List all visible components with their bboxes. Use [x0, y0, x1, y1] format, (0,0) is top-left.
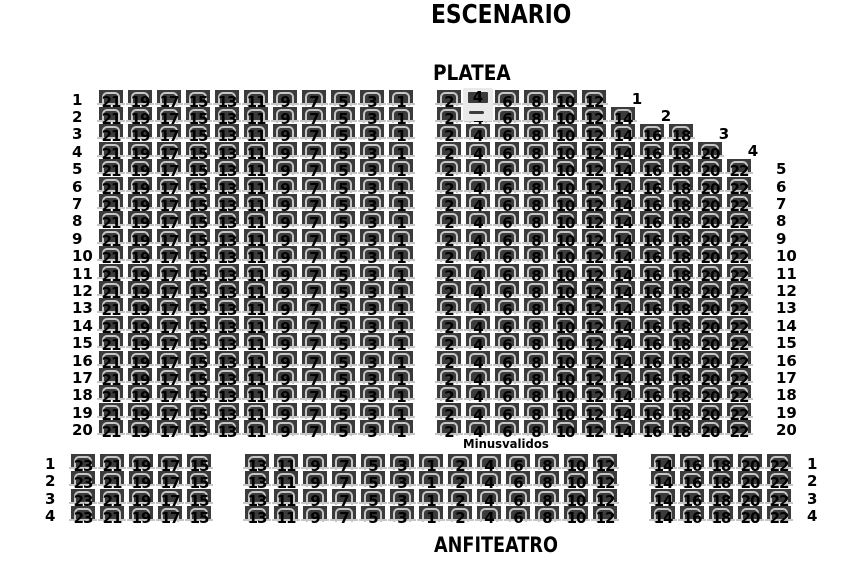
seat-platea-left-row20-num15[interactable]: 15 [186, 420, 210, 435]
seat-anfiteatro-right-row3-num16[interactable]: 16 [680, 489, 704, 504]
seat-platea-right-row20-num12[interactable]: 12 [582, 420, 606, 435]
seat-platea-left-row3-num13[interactable]: 13 [215, 124, 239, 139]
seat-platea-left-row10-num11[interactable]: 11 [244, 246, 268, 261]
seat-platea-right-row15-num14[interactable]: 14 [611, 333, 635, 348]
seat-number: 8 [521, 303, 551, 318]
seat-platea-left-row7-num21[interactable]: 21 [99, 194, 123, 209]
seat-number: 17 [154, 129, 184, 144]
seat-anfiteatro-right-row3-num22[interactable]: 22 [767, 489, 791, 504]
seat-number: 6 [503, 476, 533, 491]
seat-platea-left-row3-num15[interactable]: 15 [186, 124, 210, 139]
seat-platea-left-row8-num17[interactable]: 17 [157, 211, 181, 226]
seat-platea-right-row3-num16[interactable]: 16 [640, 124, 664, 139]
seat-platea-left-row13-num19[interactable]: 19 [128, 298, 152, 313]
seat-platea-left-row3-num21[interactable]: 21 [99, 124, 123, 139]
seat-platea-left-row1-num13[interactable]: 13 [215, 90, 239, 105]
seat-platea-right-row10-num14[interactable]: 14 [611, 246, 635, 261]
seat-platea-right-row13-num18[interactable]: 18 [669, 298, 693, 313]
seat-number: 18 [666, 390, 696, 405]
seat-anfiteatro-left-row1-num23[interactable]: 23 [71, 454, 95, 469]
seat-anfiteatro-left-row3-num15[interactable]: 15 [187, 489, 211, 504]
seat-platea-left-row2-num15[interactable]: 15 [186, 107, 210, 122]
seat-platea-left-row17-num15[interactable]: 15 [186, 368, 210, 383]
seat-number: 6 [492, 251, 522, 266]
seat-platea-right-row12-num16[interactable]: 16 [640, 281, 664, 296]
seat-platea-right-row1-num12[interactable]: 12 [582, 90, 606, 105]
seat-platea-left-row10-num21[interactable]: 21 [99, 246, 123, 261]
seat-anfiteatro-middle-row3-num10[interactable]: 10 [564, 489, 588, 504]
seat-anfiteatro-left-row1-num15[interactable]: 15 [187, 454, 211, 469]
seat-platea-right-row1-num6[interactable]: 6 [495, 90, 519, 105]
platea-row-label-right-15: 15 [776, 336, 797, 351]
seat-anfiteatro-right-row1-num14[interactable]: 14 [651, 454, 675, 469]
seat-number: 11 [241, 251, 271, 266]
seat-platea-left-row10-num17[interactable]: 17 [157, 246, 181, 261]
seat-platea-right-row17-num18[interactable]: 18 [669, 368, 693, 383]
seat-number: 5 [328, 373, 358, 388]
seat-platea-left-row7-num17[interactable]: 17 [157, 194, 181, 209]
seat-anfiteatro-middle-row2-num11[interactable]: 11 [274, 471, 298, 486]
seat-platea-left-row7-num13[interactable]: 13 [215, 194, 239, 209]
seat-platea-right-row5-num22[interactable]: 22 [727, 159, 751, 174]
seat-platea-left-row18-num15[interactable]: 15 [186, 385, 210, 400]
seat-platea-right-row20-num14[interactable]: 14 [611, 420, 635, 435]
seat-number: 17 [154, 164, 184, 179]
seat-platea-left-row13-num15[interactable]: 15 [186, 298, 210, 313]
seat-number: 11 [271, 459, 301, 474]
seat-platea-right-row18-num18[interactable]: 18 [669, 385, 693, 400]
anfiteatro-row-label-left-2: 2 [45, 474, 55, 489]
seat-platea-left-row15-num13[interactable]: 13 [215, 333, 239, 348]
seat-anfiteatro-left-row3-num17[interactable]: 17 [158, 489, 182, 504]
seat-number: 11 [241, 286, 271, 301]
seat-anfiteatro-middle-row4-num12[interactable]: 12 [593, 506, 617, 521]
seat-anfiteatro-middle-row1-num9[interactable]: 9 [303, 454, 327, 469]
seat-platea-left-row2-num13[interactable]: 13 [215, 107, 239, 122]
seat-platea-left-row13-num21[interactable]: 21 [99, 298, 123, 313]
seat-number: 16 [637, 147, 667, 162]
seat-platea-right-row7-num10[interactable]: 10 [553, 194, 577, 209]
seat-anfiteatro-right-row1-num18[interactable]: 18 [709, 454, 733, 469]
seat-anfiteatro-left-row2-num17[interactable]: 17 [158, 471, 182, 486]
seat-platea-right-row1-num8[interactable]: 8 [524, 90, 548, 105]
seat-platea-right-row18-num10[interactable]: 10 [553, 385, 577, 400]
seat-platea-left-row3-num11[interactable]: 11 [244, 124, 268, 139]
seat-platea-left-row5-num13[interactable]: 13 [215, 159, 239, 174]
seat-anfiteatro-right-row2-num18[interactable]: 18 [709, 471, 733, 486]
seat-number: 15 [184, 476, 214, 491]
seat-number: 12 [579, 129, 609, 144]
seat-platea-right-row8-num20[interactable]: 20 [698, 211, 722, 226]
seat-anfiteatro-right-row2-num22[interactable]: 22 [767, 471, 791, 486]
seat-platea-left-row1-num21[interactable]: 21 [99, 90, 123, 105]
seat-platea-left-row5-num19[interactable]: 19 [128, 159, 152, 174]
seat-platea-left-row8-num21[interactable]: 21 [99, 211, 123, 226]
seat-number: 13 [212, 425, 242, 440]
seat-platea-right-row12-num14[interactable]: 14 [611, 281, 635, 296]
seat-platea-right-row17-num16[interactable]: 16 [640, 368, 664, 383]
seat-platea-left-row2-num17[interactable]: 17 [157, 107, 181, 122]
seat-platea-right-row3-num14[interactable]: 14 [611, 124, 635, 139]
seat-anfiteatro-middle-row4-num11[interactable]: 11 [274, 506, 298, 521]
seat-platea-left-row15-num11[interactable]: 11 [244, 333, 268, 348]
seat-anfiteatro-middle-row2-num13[interactable]: 13 [245, 471, 269, 486]
seat-platea-right-row5-num18[interactable]: 18 [669, 159, 693, 174]
seat-platea-right-row12-num12[interactable]: 12 [582, 281, 606, 296]
seat-platea-left-row1-num1[interactable]: 1 [389, 90, 413, 105]
seat-platea-left-row18-num19[interactable]: 19 [128, 385, 152, 400]
seat-platea-right-row5-num20[interactable]: 20 [698, 159, 722, 174]
seat-number: 6 [492, 303, 522, 318]
seat-number: 22 [724, 321, 754, 336]
seat-platea-right-row1-num10[interactable]: 10 [553, 90, 577, 105]
seat-anfiteatro-right-row3-num18[interactable]: 18 [709, 489, 733, 504]
seat-number: 17 [154, 269, 184, 284]
seat-platea-right-row8-num14[interactable]: 14 [611, 211, 635, 226]
seat-platea-left-row1-num11[interactable]: 11 [244, 90, 268, 105]
seat-platea-left-row12-num15[interactable]: 15 [186, 281, 210, 296]
seat-platea-right-row8-num18[interactable]: 18 [669, 211, 693, 226]
seat-platea-left-row1-num17[interactable]: 17 [157, 90, 181, 105]
seat-platea-left-row17-num19[interactable]: 19 [128, 368, 152, 383]
seat-number: 8 [521, 112, 551, 127]
seat-platea-right-row7-num16[interactable]: 16 [640, 194, 664, 209]
seat-anfiteatro-middle-row1-num4[interactable]: 4 [477, 454, 501, 469]
seat-anfiteatro-middle-row1-num12[interactable]: 12 [593, 454, 617, 469]
seat-platea-right-row15-num22[interactable]: 22 [727, 333, 751, 348]
seat-number: 7 [299, 269, 329, 284]
seat-platea-left-row1-num7[interactable]: 7 [302, 90, 326, 105]
seat-platea-left-row8-num19[interactable]: 19 [128, 211, 152, 226]
seat-platea-right-row17-num14[interactable]: 14 [611, 368, 635, 383]
seat-number: 22 [724, 182, 754, 197]
seat-number: 2 [434, 303, 464, 318]
seat-number: 21 [96, 338, 126, 353]
seat-platea-right-row18-num22[interactable]: 22 [727, 385, 751, 400]
seat-platea-left-row13-num13[interactable]: 13 [215, 298, 239, 313]
seat-platea-right-row10-num12[interactable]: 12 [582, 246, 606, 261]
seat-platea-left-row8-num13[interactable]: 13 [215, 211, 239, 226]
seat-platea-left-row20-num13[interactable]: 13 [215, 420, 239, 435]
seat-number: 6 [492, 390, 522, 405]
seat-anfiteatro-middle-row2-num12[interactable]: 12 [593, 471, 617, 486]
seat-anfiteatro-middle-row1-num11[interactable]: 11 [274, 454, 298, 469]
seat-platea-right-row20-num10[interactable]: 10 [553, 420, 577, 435]
seat-platea-right-row10-num10[interactable]: 10 [553, 246, 577, 261]
seat-number: 18 [666, 425, 696, 440]
seat-anfiteatro-middle-row1-num6[interactable]: 6 [506, 454, 530, 469]
seat-platea-right-row15-num12[interactable]: 12 [582, 333, 606, 348]
seat-anfiteatro-left-row3-num23[interactable]: 23 [71, 489, 95, 504]
seat-platea-left-row2-num11[interactable]: 11 [244, 107, 268, 122]
seat-platea-right-row18-num12[interactable]: 12 [582, 385, 606, 400]
seat-platea-left-row5-num17[interactable]: 17 [157, 159, 181, 174]
seat-anfiteatro-middle-row3-num13[interactable]: 13 [245, 489, 269, 504]
seat-anfiteatro-right-row4-num16[interactable]: 16 [680, 506, 704, 521]
seat-anfiteatro-middle-row1-num2[interactable]: 2 [448, 454, 472, 469]
seat-number: 18 [666, 216, 696, 231]
seat-platea-left-row10-num13[interactable]: 13 [215, 246, 239, 261]
seat-platea-left-row7-num11[interactable]: 11 [244, 194, 268, 209]
seat-number: 7 [299, 408, 329, 423]
seat-platea-left-row12-num19[interactable]: 19 [128, 281, 152, 296]
seat-number: 10 [550, 269, 580, 284]
seat-platea-left-row13-num17[interactable]: 17 [157, 298, 181, 313]
seat-platea-left-row2-num21[interactable]: 21 [99, 107, 123, 122]
seat-number: 1 [416, 459, 446, 474]
anfiteatro-row-label-right-4: 4 [807, 509, 817, 524]
seat-platea-left-row5-num21[interactable]: 21 [99, 159, 123, 174]
seat-platea-left-row1-num9[interactable]: 9 [273, 90, 297, 105]
seat-number: 20 [735, 494, 765, 509]
seat-number: 7 [299, 286, 329, 301]
seat-anfiteatro-middle-row1-num3[interactable]: 3 [390, 454, 414, 469]
seat-platea-left-row2-num19[interactable]: 19 [128, 107, 152, 122]
seat-platea-left-row12-num21[interactable]: 21 [99, 281, 123, 296]
seat-number: 10 [561, 476, 591, 491]
seat-number: 21 [97, 494, 127, 509]
seat-platea-right-row17-num12[interactable]: 12 [582, 368, 606, 383]
seat-anfiteatro-left-row4-num19[interactable]: 19 [129, 506, 153, 521]
seat-platea-right-row5-num10[interactable]: 10 [553, 159, 577, 174]
seat-platea-right-row12-num20[interactable]: 20 [698, 281, 722, 296]
seat-platea-right-row13-num22[interactable]: 22 [727, 298, 751, 313]
seat-platea-left-row1-num19[interactable]: 19 [128, 90, 152, 105]
seat-number: 2 [434, 234, 464, 249]
seat-platea-right-row10-num20[interactable]: 20 [698, 246, 722, 261]
seat-number: 10 [550, 251, 580, 266]
seat-platea-right-row7-num22[interactable]: 22 [727, 194, 751, 209]
seat-platea-right-row10-num16[interactable]: 16 [640, 246, 664, 261]
platea-row-label-left-15: 15 [72, 336, 93, 351]
seat-platea-left-row15-num21[interactable]: 21 [99, 333, 123, 348]
seat-number: 12 [579, 356, 609, 371]
seat-platea-right-row5-num16[interactable]: 16 [640, 159, 664, 174]
seat-platea-left-row15-num17[interactable]: 17 [157, 333, 181, 348]
seat-anfiteatro-right-row2-num16[interactable]: 16 [680, 471, 704, 486]
seat-anfiteatro-left-row4-num17[interactable]: 17 [158, 506, 182, 521]
seat-platea-right-row1-num2[interactable]: 2 [437, 90, 461, 105]
seat-platea-right-row2-num10[interactable]: 10 [553, 107, 577, 122]
seat-number: 15 [184, 459, 214, 474]
seat-anfiteatro-left-row4-num23[interactable]: 23 [71, 506, 95, 521]
seat-platea-right-row13-num10[interactable]: 10 [553, 298, 577, 313]
seat-platea-left-row17-num17[interactable]: 17 [157, 368, 181, 383]
seat-platea-right-row2-num14[interactable]: 14 [611, 107, 635, 122]
seat-platea-right-row20-num22[interactable]: 22 [727, 420, 751, 435]
seat-anfiteatro-left-row1-num19[interactable]: 19 [129, 454, 153, 469]
seat-number: 7 [329, 511, 359, 526]
seat-number: 16 [637, 390, 667, 405]
seat-anfiteatro-right-row2-num14[interactable]: 14 [651, 471, 675, 486]
seat-platea-right-row20-num16[interactable]: 16 [640, 420, 664, 435]
seat-platea-left-row20-num19[interactable]: 19 [128, 420, 152, 435]
seat-anfiteatro-middle-row1-num8[interactable]: 8 [535, 454, 559, 469]
seat-anfiteatro-middle-row1-num13[interactable]: 13 [245, 454, 269, 469]
seat-platea-left-row12-num11[interactable]: 11 [244, 281, 268, 296]
seat-platea-right-row8-num22[interactable]: 22 [727, 211, 751, 226]
seat-platea-left-row7-num19[interactable]: 19 [128, 194, 152, 209]
platea-step-row-label-3: 3 [719, 127, 729, 142]
seat-platea-right-row18-num20[interactable]: 20 [698, 385, 722, 400]
seat-platea-right-row18-num14[interactable]: 14 [611, 385, 635, 400]
seat-anfiteatro-middle-row1-num10[interactable]: 10 [564, 454, 588, 469]
seat-platea-left-row17-num13[interactable]: 13 [215, 368, 239, 383]
seat-anfiteatro-middle-row1-num7[interactable]: 7 [332, 454, 356, 469]
seat-number: 6 [492, 425, 522, 440]
seat-number: 10 [550, 321, 580, 336]
seat-number: 6 [503, 459, 533, 474]
seat-platea-right-row2-num12[interactable]: 12 [582, 107, 606, 122]
seat-number: 19 [125, 216, 155, 231]
seat-platea-left-row10-num15[interactable]: 15 [186, 246, 210, 261]
seat-anfiteatro-left-row1-num21[interactable]: 21 [100, 454, 124, 469]
seat-anfiteatro-left-row3-num19[interactable]: 19 [129, 489, 153, 504]
seat-anfiteatro-right-row2-num20[interactable]: 20 [738, 471, 762, 486]
seat-platea-left-row3-num17[interactable]: 17 [157, 124, 181, 139]
seat-anfiteatro-middle-row1-num1[interactable]: 1 [419, 454, 443, 469]
seat-number: 19 [125, 408, 155, 423]
seat-platea-right-row15-num10[interactable]: 10 [553, 333, 577, 348]
seat-platea-right-row8-num16[interactable]: 16 [640, 211, 664, 226]
seat-anfiteatro-left-row1-num17[interactable]: 17 [158, 454, 182, 469]
seat-platea-right-row8-num10[interactable]: 10 [553, 211, 577, 226]
seat-anfiteatro-middle-row4-num13[interactable]: 13 [245, 506, 269, 521]
seat-anfiteatro-left-row4-num15[interactable]: 15 [187, 506, 211, 521]
seat-anfiteatro-left-row2-num23[interactable]: 23 [71, 471, 95, 486]
seat-platea-left-row8-num11[interactable]: 11 [244, 211, 268, 226]
seat-platea-right-row7-num20[interactable]: 20 [698, 194, 722, 209]
seat-anfiteatro-left-row3-num21[interactable]: 21 [100, 489, 124, 504]
seat-platea-left-row3-num19[interactable]: 19 [128, 124, 152, 139]
seat-number: 23 [68, 476, 98, 491]
seat-number: 9 [300, 476, 330, 491]
seat-platea-left-row20-num11[interactable]: 11 [244, 420, 268, 435]
seat-platea-right-row15-num16[interactable]: 16 [640, 333, 664, 348]
seat-platea-left-row1-num15[interactable]: 15 [186, 90, 210, 105]
seat-anfiteatro-right-row1-num20[interactable]: 20 [738, 454, 762, 469]
seat-anfiteatro-right-row4-num20[interactable]: 20 [738, 506, 762, 521]
seat-platea-right-row3-num18[interactable]: 18 [669, 124, 693, 139]
seat-platea-left-row13-num11[interactable]: 11 [244, 298, 268, 313]
seat-platea-right-row3-num10[interactable]: 10 [553, 124, 577, 139]
seat-platea-right-row13-num14[interactable]: 14 [611, 298, 635, 313]
seat-number: 7 [299, 234, 329, 249]
seat-platea-right-row10-num22[interactable]: 22 [727, 246, 751, 261]
seat-platea-left-row17-num21[interactable]: 21 [99, 368, 123, 383]
seat-platea-left-row18-num17[interactable]: 17 [157, 385, 181, 400]
seat-number: 22 [724, 390, 754, 405]
seat-platea-right-row20-num20[interactable]: 20 [698, 420, 722, 435]
seat-anfiteatro-middle-row2-num10[interactable]: 10 [564, 471, 588, 486]
seat-platea-left-row18-num13[interactable]: 13 [215, 385, 239, 400]
seat-number: 8 [521, 216, 551, 231]
seat-anfiteatro-right-row4-num14[interactable]: 14 [651, 506, 675, 521]
seat-platea-left-row18-num11[interactable]: 11 [244, 385, 268, 400]
seat-number: 21 [97, 511, 127, 526]
seat-platea-right-row7-num12[interactable]: 12 [582, 194, 606, 209]
seat-platea-right-row17-num20[interactable]: 20 [698, 368, 722, 383]
seat-anfiteatro-middle-row4-num10[interactable]: 10 [564, 506, 588, 521]
seat-platea-left-row12-num13[interactable]: 13 [215, 281, 239, 296]
seat-platea-right-row13-num20[interactable]: 20 [698, 298, 722, 313]
seat-anfiteatro-left-row2-num21[interactable]: 21 [100, 471, 124, 486]
seat-anfiteatro-right-row3-num20[interactable]: 20 [738, 489, 762, 504]
seat-platea-left-row1-num5[interactable]: 5 [331, 90, 355, 105]
seat-platea-right-row4-num20[interactable]: 20 [698, 142, 722, 157]
seat-platea-left-row5-num11[interactable]: 11 [244, 159, 268, 174]
seat-anfiteatro-right-row1-num22[interactable]: 22 [767, 454, 791, 469]
seat-anfiteatro-middle-row3-num11[interactable]: 11 [274, 489, 298, 504]
seat-platea-right-row17-num22[interactable]: 22 [727, 368, 751, 383]
seat-platea-right-row18-num16[interactable]: 16 [640, 385, 664, 400]
seat-anfiteatro-right-row3-num14[interactable]: 14 [651, 489, 675, 504]
seat-number: 17 [154, 112, 184, 127]
seat-anfiteatro-middle-row3-num12[interactable]: 12 [593, 489, 617, 504]
seat-number: 4 [463, 199, 493, 214]
seat-platea-right-row3-num12[interactable]: 12 [582, 124, 606, 139]
seat-platea-right-row12-num10[interactable]: 10 [553, 281, 577, 296]
seat-platea-right-row15-num18[interactable]: 18 [669, 333, 693, 348]
seat-platea-right-row15-num20[interactable]: 20 [698, 333, 722, 348]
seat-number: 13 [212, 164, 242, 179]
seat-number: 8 [521, 129, 551, 144]
seat-number: 7 [329, 459, 359, 474]
seat-platea-left-row7-num15[interactable]: 15 [186, 194, 210, 209]
seat-platea-left-row20-num21[interactable]: 21 [99, 420, 123, 435]
seat-anfiteatro-right-row1-num16[interactable]: 16 [680, 454, 704, 469]
seat-platea-left-row12-num17[interactable]: 17 [157, 281, 181, 296]
seat-number: 13 [212, 269, 242, 284]
seat-platea-left-row15-num15[interactable]: 15 [186, 333, 210, 348]
seat-platea-left-row5-num15[interactable]: 15 [186, 159, 210, 174]
seat-anfiteatro-left-row2-num19[interactable]: 19 [129, 471, 153, 486]
seat-platea-right-row7-num18[interactable]: 18 [669, 194, 693, 209]
seat-platea-right-row12-num22[interactable]: 22 [727, 281, 751, 296]
seat-number: 19 [126, 476, 156, 491]
seat-anfiteatro-left-row2-num15[interactable]: 15 [187, 471, 211, 486]
seat-platea-left-row17-num11[interactable]: 11 [244, 368, 268, 383]
seat-platea-right-row13-num16[interactable]: 16 [640, 298, 664, 313]
seat-platea-right-row12-num18[interactable]: 18 [669, 281, 693, 296]
seat-platea-left-row10-num19[interactable]: 19 [128, 246, 152, 261]
seat-platea-right-row5-num14[interactable]: 14 [611, 159, 635, 174]
seat-anfiteatro-middle-row1-num5[interactable]: 5 [361, 454, 385, 469]
seat-platea-right-row7-num14[interactable]: 14 [611, 194, 635, 209]
seat-platea-left-row18-num21[interactable]: 21 [99, 385, 123, 400]
seat-platea-right-row10-num18[interactable]: 18 [669, 246, 693, 261]
seat-platea-right-row20-num18[interactable]: 18 [669, 420, 693, 435]
seat-platea-left-row15-num19[interactable]: 19 [128, 333, 152, 348]
selected-seat-platea-right-row1-num4[interactable]: 4 [463, 88, 493, 121]
seat-number: 1 [386, 286, 416, 301]
seat-number: 18 [666, 303, 696, 318]
seat-number: 17 [155, 476, 185, 491]
seat-platea-right-row17-num10[interactable]: 10 [553, 368, 577, 383]
seat-platea-right-row8-num12[interactable]: 12 [582, 211, 606, 226]
seat-anfiteatro-right-row4-num18[interactable]: 18 [709, 506, 733, 521]
seat-anfiteatro-left-row4-num21[interactable]: 21 [100, 506, 124, 521]
seat-platea-left-row8-num15[interactable]: 15 [186, 211, 210, 226]
seat-anfiteatro-right-row4-num22[interactable]: 22 [767, 506, 791, 521]
seat-platea-left-row1-num3[interactable]: 3 [360, 90, 384, 105]
seat-number: 1 [386, 338, 416, 353]
seat-platea-left-row20-num17[interactable]: 17 [157, 420, 181, 435]
platea-row-label-left-7: 7 [72, 197, 82, 212]
seat-platea-right-row5-num12[interactable]: 12 [582, 159, 606, 174]
seat-number: 17 [154, 216, 184, 231]
seat-platea-right-row13-num12[interactable]: 12 [582, 298, 606, 313]
